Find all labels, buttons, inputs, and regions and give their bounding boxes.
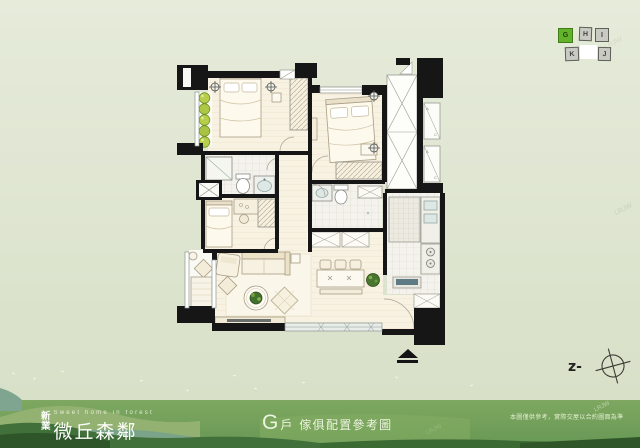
brand-main: Sweet home in forest 微丘森鄰 bbox=[54, 410, 154, 444]
brand-name: 微丘森鄰 bbox=[54, 417, 154, 444]
keyplan-unit-k-label: K bbox=[569, 50, 574, 57]
keyplan-unit-g: G bbox=[558, 28, 573, 43]
disclaimer-text: 本圖僅供參考，實際交屋以合約圖面為準 bbox=[510, 412, 623, 421]
entrance-arrow bbox=[398, 349, 418, 358]
brand-tagline: Sweet home in forest bbox=[54, 410, 154, 416]
watermark: LRJW bbox=[613, 202, 633, 217]
keyplan-unit-h: H bbox=[579, 27, 592, 41]
compass: z- bbox=[566, 344, 640, 388]
entrance-bar bbox=[397, 360, 418, 364]
title-unit-letter: G bbox=[262, 412, 278, 433]
keyplan-unit-k: K bbox=[565, 47, 579, 61]
entrance-marker-icon bbox=[397, 349, 419, 363]
storage-closets bbox=[309, 232, 369, 247]
title-unit-word: 戶 bbox=[280, 416, 292, 433]
keyplan-unit-g-label: G bbox=[563, 32, 568, 39]
planter-bushes bbox=[199, 93, 210, 148]
compass-icon: z- bbox=[566, 344, 640, 388]
floorplan-drawing: A C A C bbox=[168, 58, 464, 354]
brand-logo: 新 業 Sweet home in forest 微丘森鄰 bbox=[41, 410, 154, 444]
keyplan-unit-i: I bbox=[595, 28, 609, 42]
keyplan-unit-i-label: I bbox=[601, 32, 603, 39]
page-title: G 戶 傢俱配置參考圖 bbox=[262, 412, 392, 433]
compass-label: z- bbox=[568, 359, 582, 375]
keyplan-unit-j-label: J bbox=[602, 50, 606, 57]
title-text: 傢俱配置參考圖 bbox=[299, 416, 392, 433]
svg-text:A: A bbox=[426, 149, 429, 154]
keyplan-unit-h-label: H bbox=[583, 30, 588, 37]
floorplan: A C A C bbox=[168, 58, 464, 354]
brand-char-bottom: 業 bbox=[41, 422, 51, 432]
svg-text:C: C bbox=[434, 175, 437, 180]
keyplan-core bbox=[580, 45, 597, 59]
svg-text:A: A bbox=[426, 106, 429, 111]
brand-prefix: 新 業 bbox=[41, 412, 51, 432]
svg-text:C: C bbox=[434, 132, 437, 137]
